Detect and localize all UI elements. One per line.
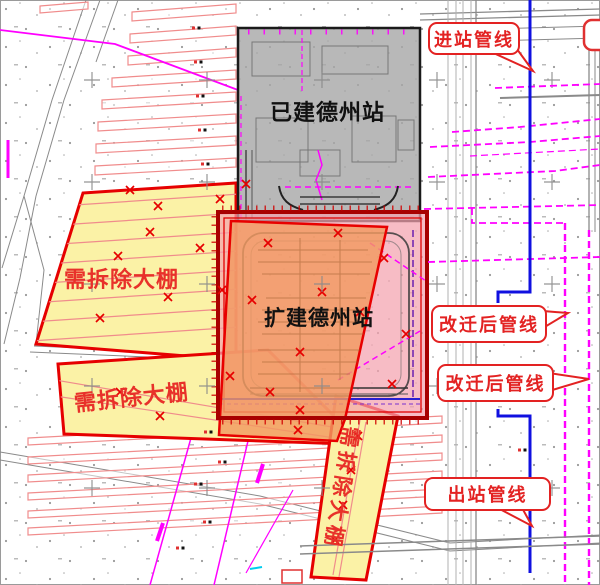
callout-relocated-pipeline-2: 改迁后管线 — [437, 364, 554, 402]
callout-outlet-pipeline: 出站管线 — [424, 477, 551, 511]
callout-relocated-pipeline-1: 改迁后管线 — [431, 305, 547, 343]
callout-inlet-pipeline: 进站管线 — [428, 22, 520, 55]
site-plan-map: 进站管线 改迁后管线 改迁后管线 出站管线 已建德州站 扩建德州站 需拆除大棚 … — [0, 0, 600, 585]
existing-station-zone — [238, 28, 420, 221]
